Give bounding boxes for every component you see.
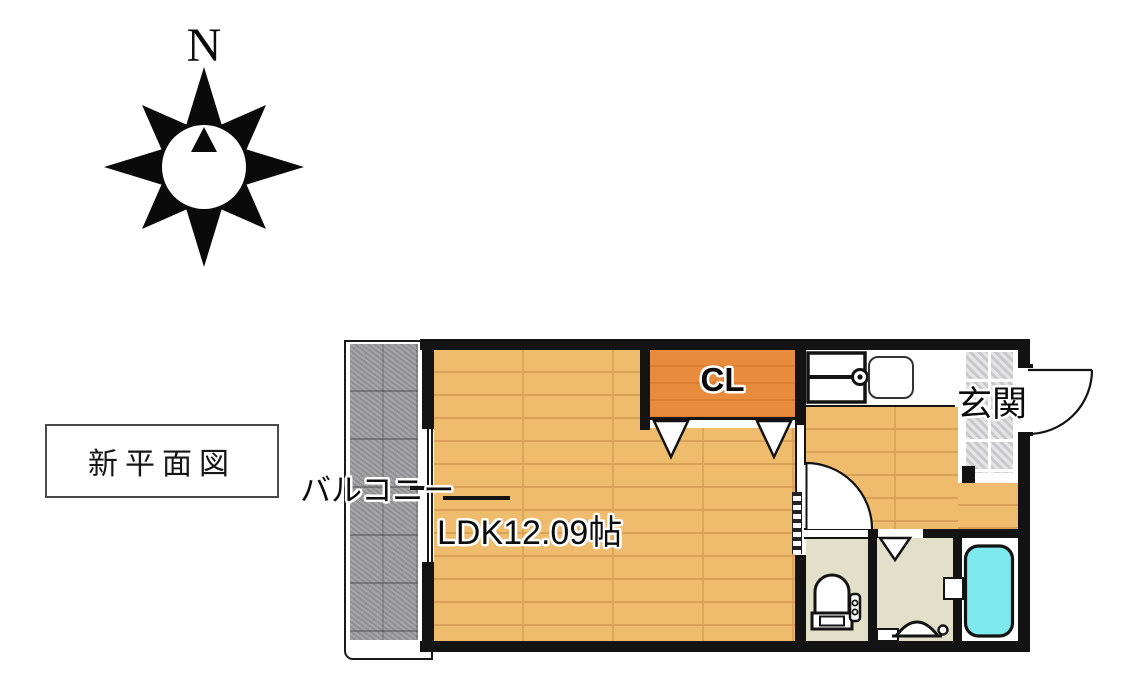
wall-right-upper <box>1018 339 1030 367</box>
plan-title-box: 新平面図 <box>45 424 279 498</box>
ldk-label: LDK12.09帖 <box>437 515 622 552</box>
toilet-room-floor <box>806 538 868 641</box>
wall-divider-lower <box>795 555 806 652</box>
kitchen-counter <box>806 350 963 407</box>
wall-entrance-stub <box>962 466 975 483</box>
wall-toilet-washroom <box>868 529 877 643</box>
wall-closet-left <box>640 350 650 430</box>
entrance-door-arc <box>1018 364 1092 436</box>
wall-top <box>420 339 1030 350</box>
closet-door-track <box>650 420 795 428</box>
hallway-floor-lower <box>958 483 1019 529</box>
floor-plan-canvas: N 新平面図 <box>0 0 1144 676</box>
wall-bottom <box>420 641 1030 652</box>
wall-divider-upper <box>795 339 806 425</box>
balcony-label: バルコニー <box>300 474 454 508</box>
wall-right-lower <box>1018 433 1030 652</box>
washroom-floor <box>877 538 953 641</box>
hallway-floor-upper <box>806 407 958 529</box>
washroom-door-opening <box>878 529 923 538</box>
bathroom-floor <box>962 538 1019 641</box>
wall-washroom-bath <box>953 529 962 643</box>
entrance-label: 玄関 <box>957 386 1027 425</box>
compass-rose-icon <box>99 62 309 272</box>
toilet-door <box>804 528 868 539</box>
wall-left-lower <box>422 562 434 652</box>
door-jamb-hatch <box>792 492 802 554</box>
room-door-frame-right <box>804 425 806 465</box>
plan-title: 新平面図 <box>88 439 236 483</box>
wall-left-upper <box>422 339 434 429</box>
closet-label: CL <box>650 362 795 398</box>
